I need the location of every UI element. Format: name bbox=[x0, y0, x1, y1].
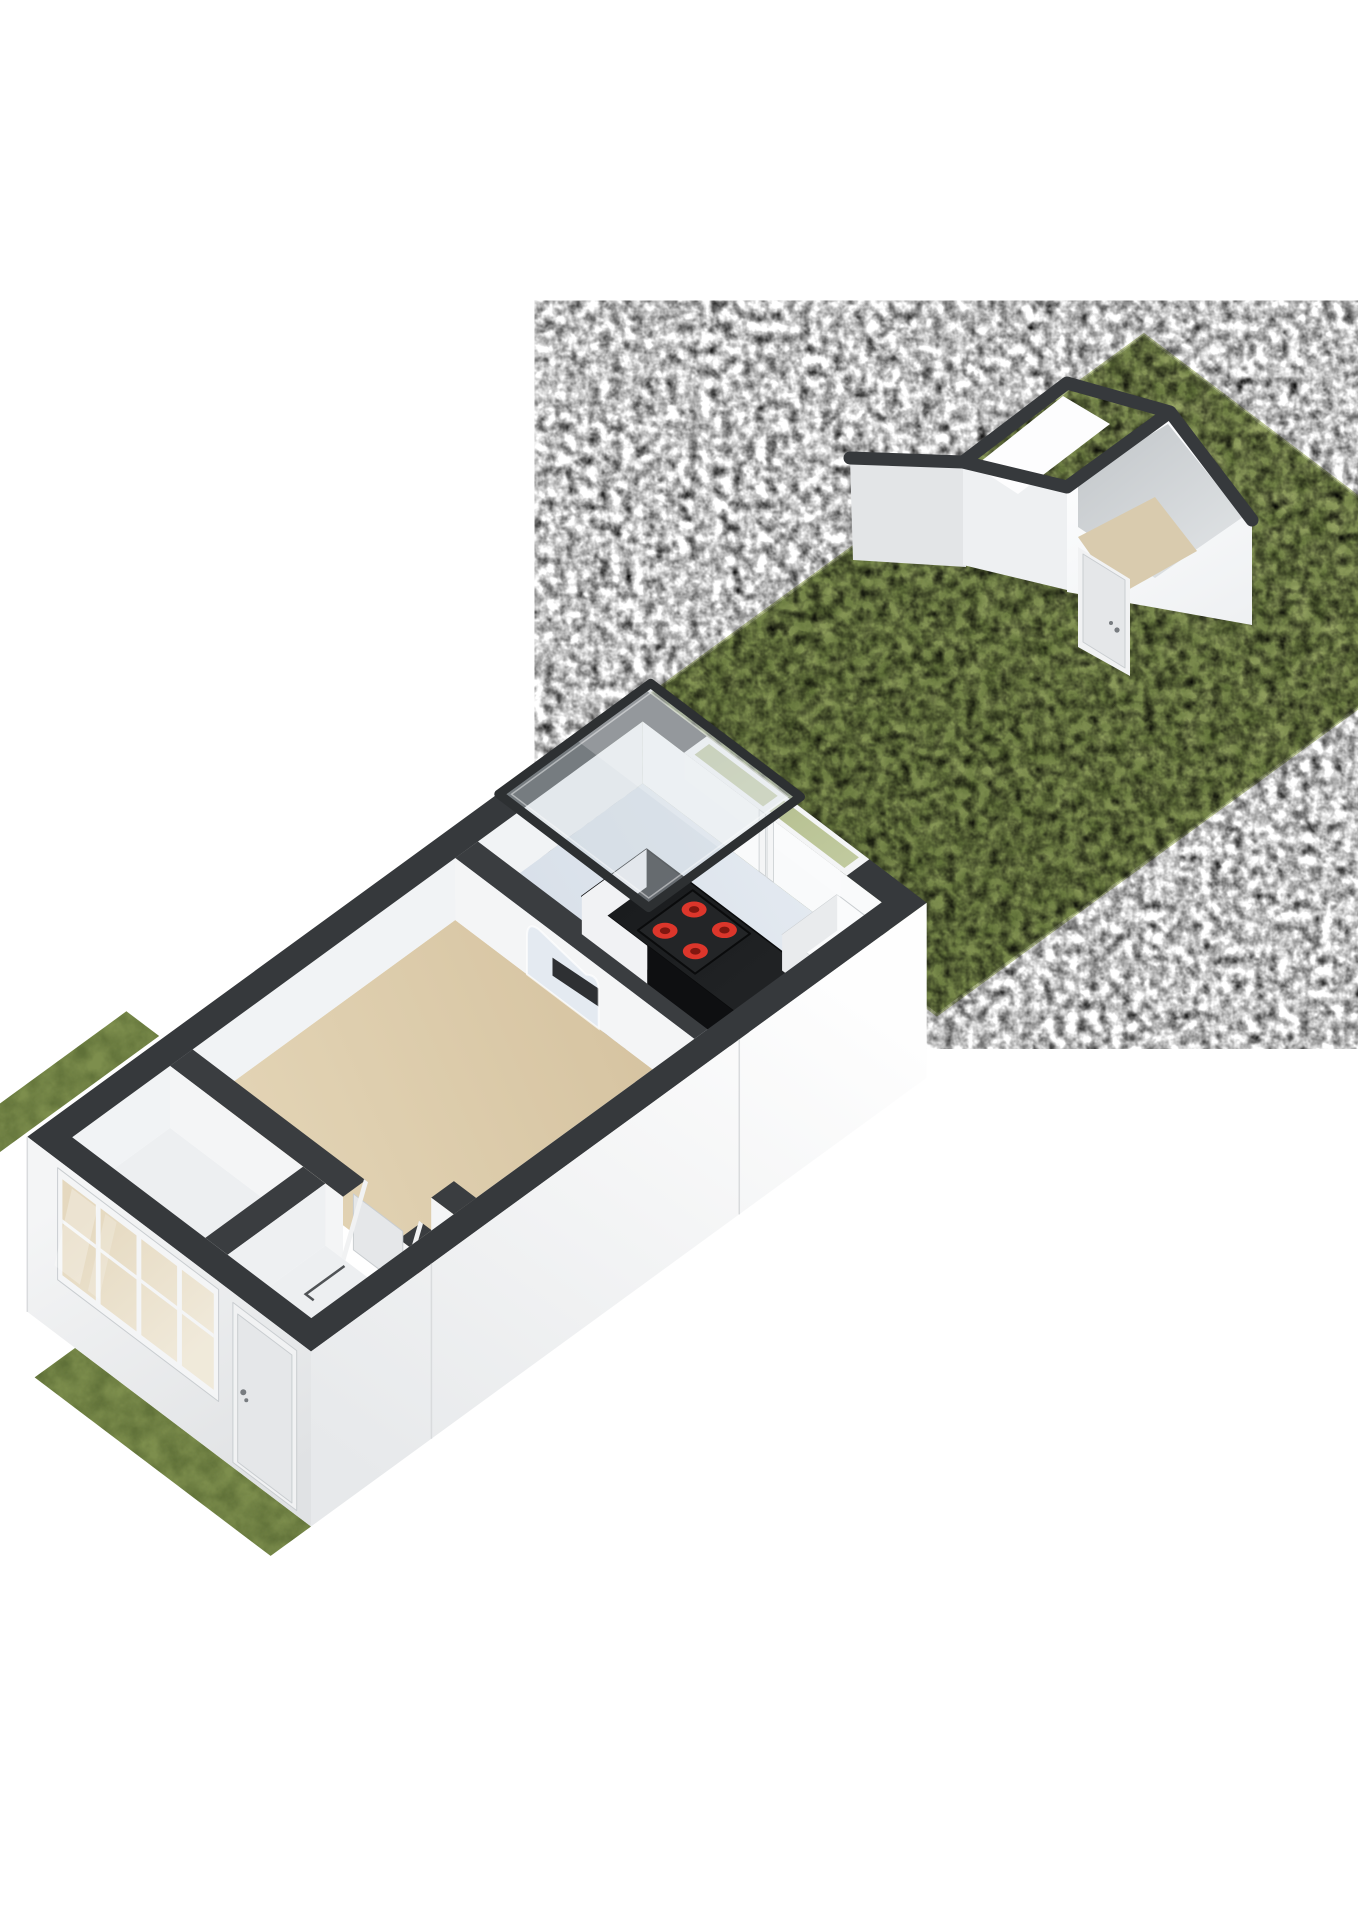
living-window-mullion bbox=[137, 1233, 142, 1337]
burner-core bbox=[660, 927, 670, 934]
floorplan-stage bbox=[0, 0, 1358, 1920]
burner-core bbox=[689, 906, 699, 913]
burner-core bbox=[690, 948, 700, 955]
shed-door-handle bbox=[1109, 621, 1113, 625]
shed-door-handle bbox=[1114, 627, 1119, 632]
living-window-mullion bbox=[177, 1264, 182, 1368]
front-door-handle bbox=[240, 1389, 246, 1395]
house-layer bbox=[0, 688, 927, 1556]
floorplan-scene bbox=[0, 0, 1358, 1920]
shed-left-wall-face bbox=[850, 458, 966, 567]
burner-core bbox=[719, 927, 729, 934]
front-door-handle bbox=[244, 1398, 248, 1402]
